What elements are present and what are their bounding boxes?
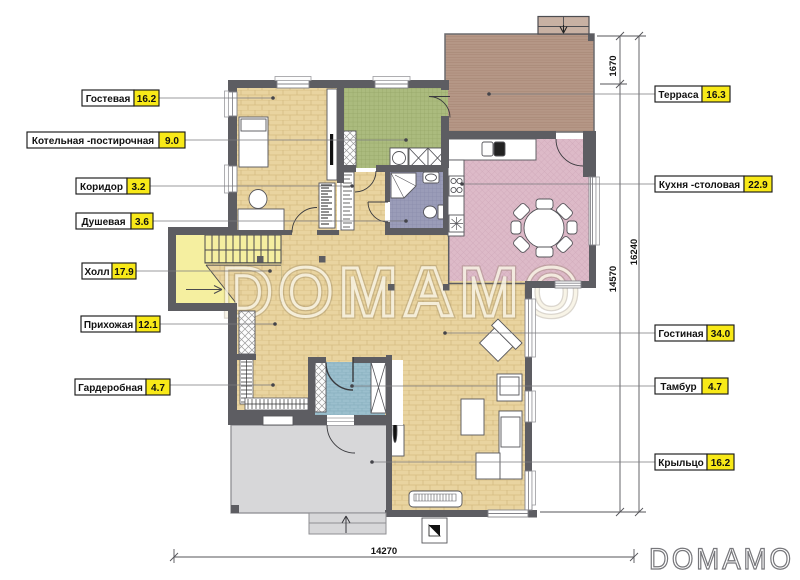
svg-text:DOMAMO: DOMAMO bbox=[649, 543, 794, 575]
svg-text:Терраса: Терраса bbox=[658, 90, 699, 101]
svg-text:4.7: 4.7 bbox=[708, 382, 722, 393]
svg-text:17.9: 17.9 bbox=[114, 267, 134, 278]
svg-text:Котельная -постирочная: Котельная -постирочная bbox=[32, 136, 154, 147]
svg-text:Гостиная: Гостиная bbox=[658, 329, 703, 340]
svg-text:Коридор: Коридор bbox=[80, 182, 123, 193]
svg-text:Прихожая: Прихожая bbox=[84, 320, 134, 331]
svg-text:Крыльцо: Крыльцо bbox=[658, 458, 704, 469]
svg-text:12.1: 12.1 bbox=[138, 320, 158, 331]
svg-text:3.6: 3.6 bbox=[135, 217, 149, 228]
svg-text:Гардеробная: Гардеробная bbox=[78, 382, 143, 394]
svg-text:16.2: 16.2 bbox=[711, 458, 731, 469]
svg-text:22.9: 22.9 bbox=[748, 180, 768, 191]
svg-text:Холл: Холл bbox=[84, 267, 109, 278]
svg-text:1670: 1670 bbox=[608, 55, 619, 76]
svg-text:Тамбур: Тамбур bbox=[660, 381, 696, 393]
svg-text:14570: 14570 bbox=[608, 266, 619, 292]
svg-text:16.2: 16.2 bbox=[137, 94, 157, 105]
svg-text:9.0: 9.0 bbox=[165, 136, 179, 147]
svg-text:Кухня -столовая: Кухня -столовая bbox=[659, 180, 740, 191]
svg-text:16.3: 16.3 bbox=[706, 90, 726, 101]
svg-text:3.2: 3.2 bbox=[132, 182, 146, 193]
svg-text:Душевая: Душевая bbox=[81, 217, 125, 228]
svg-text:Гостевая: Гостевая bbox=[86, 94, 131, 105]
svg-text:14270: 14270 bbox=[371, 546, 397, 557]
svg-text:34.0: 34.0 bbox=[711, 329, 731, 340]
svg-text:16240: 16240 bbox=[629, 239, 640, 265]
svg-text:4.7: 4.7 bbox=[151, 383, 165, 394]
